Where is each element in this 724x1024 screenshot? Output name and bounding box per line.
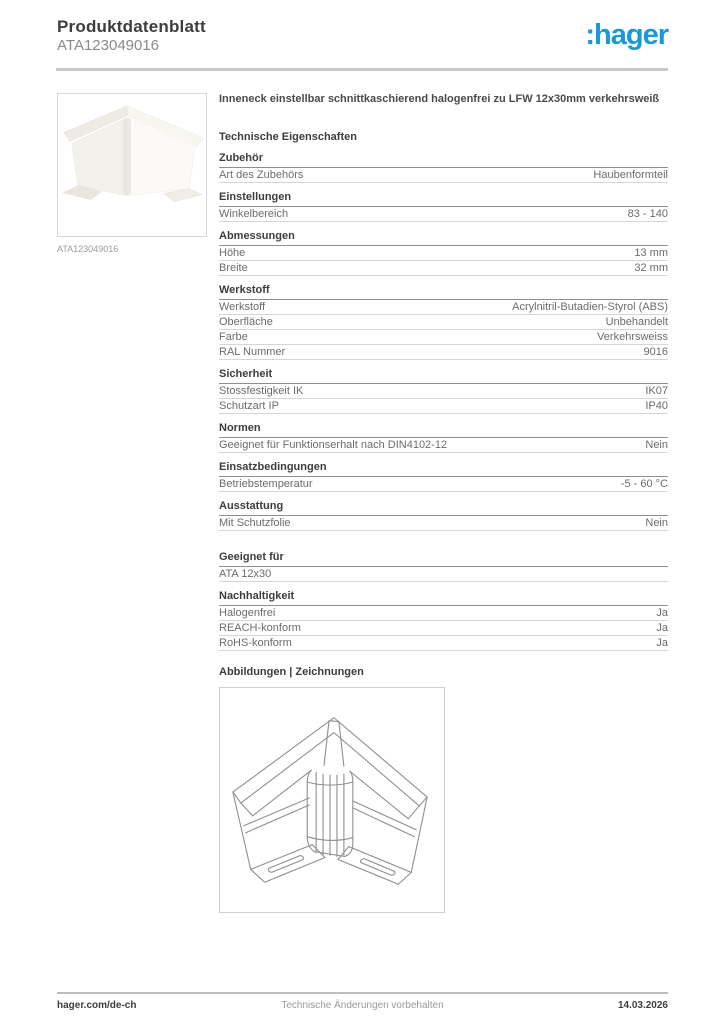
spec-row: Breite32 mm [219, 261, 668, 276]
spec-section: AbmessungenHöhe13 mmBreite32 mm [219, 230, 668, 276]
spec-row: ATA 12x30 [219, 567, 668, 582]
spec-label: ATA 12x30 [219, 568, 271, 580]
spec-row: RoHS-konformJa [219, 636, 668, 651]
spec-row: Geeignet für Funktionserhalt nach DIN410… [219, 438, 668, 453]
product-photo-render [58, 94, 206, 236]
spec-section-title: Einstellungen [219, 191, 668, 207]
spec-section: EinsatzbedingungenBetriebstemperatur-5 -… [219, 461, 668, 492]
spec-value: Nein [645, 517, 668, 529]
spec-section-title: Abmessungen [219, 230, 668, 246]
article-number: ATA123049016 [57, 37, 668, 55]
spec-label: Geeignet für Funktionserhalt nach DIN410… [219, 439, 447, 451]
spec-value: Nein [645, 439, 668, 451]
spec-value: Ja [656, 622, 668, 634]
technical-drawing-wireframe [220, 688, 444, 912]
drawings-heading: Abbildungen | Zeichnungen [219, 666, 668, 679]
spec-section: Geeignet fürATA 12x30 [219, 551, 668, 582]
spec-section-title: Nachhaltigkeit [219, 590, 668, 606]
technical-drawing [219, 687, 445, 913]
spec-value: IK07 [645, 385, 668, 397]
spec-label: Oberfläche [219, 316, 273, 328]
spec-label: Höhe [219, 247, 245, 259]
spec-value: IP40 [645, 400, 668, 412]
spec-row: HalogenfreiJa [219, 606, 668, 621]
document-title: Produktdatenblatt [57, 17, 668, 37]
spec-row: Schutzart IPIP40 [219, 399, 668, 414]
page-footer: Technische Änderungen vorbehalten hager.… [57, 1000, 668, 1011]
page-header: Produktdatenblatt ATA123049016 :hager [57, 17, 668, 55]
spec-row: REACH-konformJa [219, 621, 668, 636]
spec-section-title: Sicherheit [219, 368, 668, 384]
spec-section-title: Zubehör [219, 152, 668, 168]
spec-label: Art des Zubehörs [219, 169, 303, 181]
spec-section: SicherheitStossfestigkeit IKIK07Schutzar… [219, 368, 668, 414]
spec-section-title: Ausstattung [219, 500, 668, 516]
spec-label: Mit Schutzfolie [219, 517, 291, 529]
spec-section: ZubehörArt des ZubehörsHaubenformteil [219, 152, 668, 183]
spec-row: FarbeVerkehrsweiss [219, 330, 668, 345]
spec-value: 13 mm [634, 247, 668, 259]
spec-value: 83 - 140 [628, 208, 668, 220]
spec-section-title: Normen [219, 422, 668, 438]
spec-row: OberflächeUnbehandelt [219, 315, 668, 330]
spec-section: AusstattungMit SchutzfolieNein [219, 500, 668, 531]
spec-row: Winkelbereich83 - 140 [219, 207, 668, 222]
content-column: Inneneck einstellbar schnittkaschierend … [219, 93, 668, 913]
spec-value: Verkehrsweiss [597, 331, 668, 343]
spec-value: 9016 [644, 346, 668, 358]
spec-value: Unbehandelt [606, 316, 668, 328]
spec-section-title: Werkstoff [219, 284, 668, 300]
spec-label: RAL Nummer [219, 346, 285, 358]
spec-section: NormenGeeignet für Funktionserhalt nach … [219, 422, 668, 453]
spec-row: Höhe13 mm [219, 246, 668, 261]
spec-label: Breite [219, 262, 248, 274]
spec-section-title: Geeignet für [219, 551, 668, 567]
spec-row: Stossfestigkeit IKIK07 [219, 384, 668, 399]
header-divider [56, 68, 668, 71]
spec-label: Winkelbereich [219, 208, 288, 220]
spec-label: Farbe [219, 331, 248, 343]
spec-row: Betriebstemperatur-5 - 60 °C [219, 477, 668, 492]
spec-label: Schutzart IP [219, 400, 279, 412]
spec-section-title: Einsatzbedingungen [219, 461, 668, 477]
product-photo-caption: ATA123049016 [57, 244, 118, 254]
spec-row: Mit SchutzfolieNein [219, 516, 668, 531]
spec-value: Haubenformteil [593, 169, 668, 181]
spec-label: RoHS-konform [219, 637, 292, 649]
product-photo [57, 93, 207, 237]
product-description: Inneneck einstellbar schnittkaschierend … [219, 93, 668, 106]
spec-value: 32 mm [634, 262, 668, 274]
spec-row: RAL Nummer9016 [219, 345, 668, 360]
spec-label: Betriebstemperatur [219, 478, 313, 490]
datasheet-page: Produktdatenblatt ATA123049016 :hager AT… [0, 0, 724, 1024]
spec-value: -5 - 60 °C [621, 478, 668, 490]
spec-section: WerkstoffWerkstoffAcrylnitril-Butadien-S… [219, 284, 668, 360]
spec-label: Halogenfrei [219, 607, 275, 619]
spec-label: Werkstoff [219, 301, 265, 313]
spec-row: WerkstoffAcrylnitril-Butadien-Styrol (AB… [219, 300, 668, 315]
spec-section: NachhaltigkeitHalogenfreiJaREACH-konform… [219, 590, 668, 651]
hager-logo: :hager [585, 20, 668, 50]
footer-divider [57, 992, 668, 994]
spec-value: Acrylnitril-Butadien-Styrol (ABS) [512, 301, 668, 313]
spec-row: Art des ZubehörsHaubenformteil [219, 168, 668, 183]
spec-label: REACH-konform [219, 622, 301, 634]
spec-sections: ZubehörArt des ZubehörsHaubenformteilEin… [219, 152, 668, 651]
spec-section: EinstellungenWinkelbereich83 - 140 [219, 191, 668, 222]
spec-value: Ja [656, 637, 668, 649]
spec-value: Ja [656, 607, 668, 619]
spec-label: Stossfestigkeit IK [219, 385, 303, 397]
tech-properties-heading: Technische Eigenschaften [219, 131, 668, 144]
footer-notice: Technische Änderungen vorbehalten [57, 1000, 668, 1011]
